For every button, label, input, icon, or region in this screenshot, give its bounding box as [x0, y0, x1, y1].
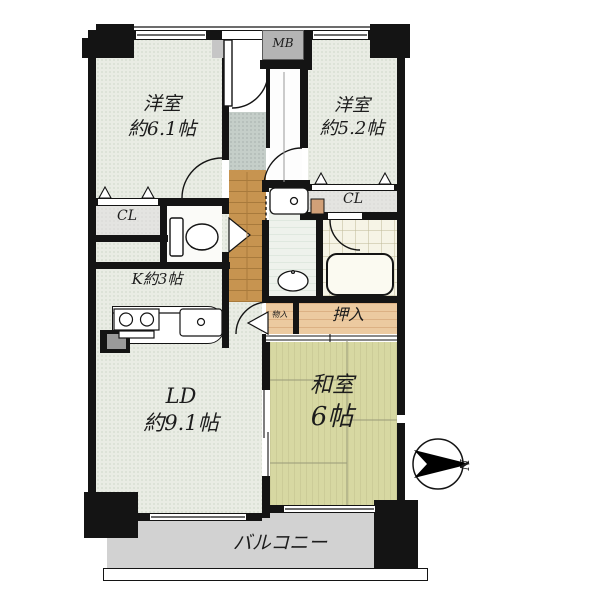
oshiire-sliding-track: [266, 334, 397, 342]
bath-door-opening: [328, 213, 362, 219]
hall-storage-floor: [269, 69, 302, 186]
floor-plan: 洋室 約6.1帖 洋室 約5.2帖 K約3帖 LD 約9.1帖 和室 6帖 押入…: [0, 0, 600, 600]
wall-room2-left-lower: [300, 186, 308, 220]
living-dining-name: LD: [100, 383, 262, 410]
corridor-wood-floor: [229, 170, 266, 302]
meter-box-label: MB: [262, 36, 304, 52]
japanese-room-name: 和室: [272, 372, 392, 401]
entrance-door-opening: [222, 31, 262, 39]
wall-hall-divider: [266, 69, 270, 148]
toilet-floor: [167, 203, 222, 262]
compass-north-label: N: [455, 457, 471, 473]
room-western-2-name: 洋室: [304, 94, 400, 117]
room-western-1-label: 洋室 約6.1帖: [98, 92, 226, 141]
wall-closet-left-bottom: [88, 235, 168, 242]
oshiire-label: 押入: [299, 305, 397, 326]
entrance-porch: [212, 40, 224, 58]
wall-ld-washitsu-a: [262, 334, 270, 390]
wall-bath-left: [316, 212, 323, 302]
window-right-notch: [397, 415, 405, 423]
kitchen-label: K約3帖: [98, 270, 216, 290]
japanese-room-size: 6帖: [272, 401, 392, 435]
wall-toilet-left: [160, 198, 167, 269]
wall-washroom-left-b: [262, 220, 269, 302]
living-dining-label: LD 約9.1帖: [100, 383, 262, 438]
room-western-1-size: 約6.1帖: [98, 117, 226, 142]
closet-left-label: CL: [96, 207, 158, 225]
pillar-top-left: [96, 24, 134, 58]
wall-washroom-left-a: [262, 186, 269, 192]
room-western-2-label: 洋室 約5.2帖: [304, 94, 400, 141]
window-room2-top: [313, 31, 368, 39]
room-western-2-size: 約5.2帖: [304, 117, 400, 140]
closet-right-label: CL: [310, 190, 396, 208]
genkan-tile: [229, 112, 266, 170]
window-room1-top: [136, 31, 206, 39]
pillar-kitchen-core: [107, 334, 126, 349]
window-washitsu-bottom: [284, 506, 375, 512]
wall-left: [88, 38, 96, 500]
monoire-label: 物入: [264, 310, 295, 320]
bathroom-floor: [316, 220, 397, 296]
balcony-rail: [103, 568, 428, 581]
wall-ld-washitsu-b: [262, 476, 270, 518]
room-western-1-name: 洋室: [98, 92, 226, 117]
japanese-room-label: 和室 6帖: [272, 372, 392, 434]
living-dining-size: 約9.1帖: [100, 410, 262, 437]
wall-toilet-bottom: [88, 262, 230, 269]
window-ld-bottom: [150, 514, 246, 520]
entrance-floor: [229, 40, 266, 112]
closet-left-folding-opening: [98, 199, 158, 205]
balcony-label: バルコニー: [160, 531, 400, 556]
wall-oshiire-top: [262, 296, 404, 303]
